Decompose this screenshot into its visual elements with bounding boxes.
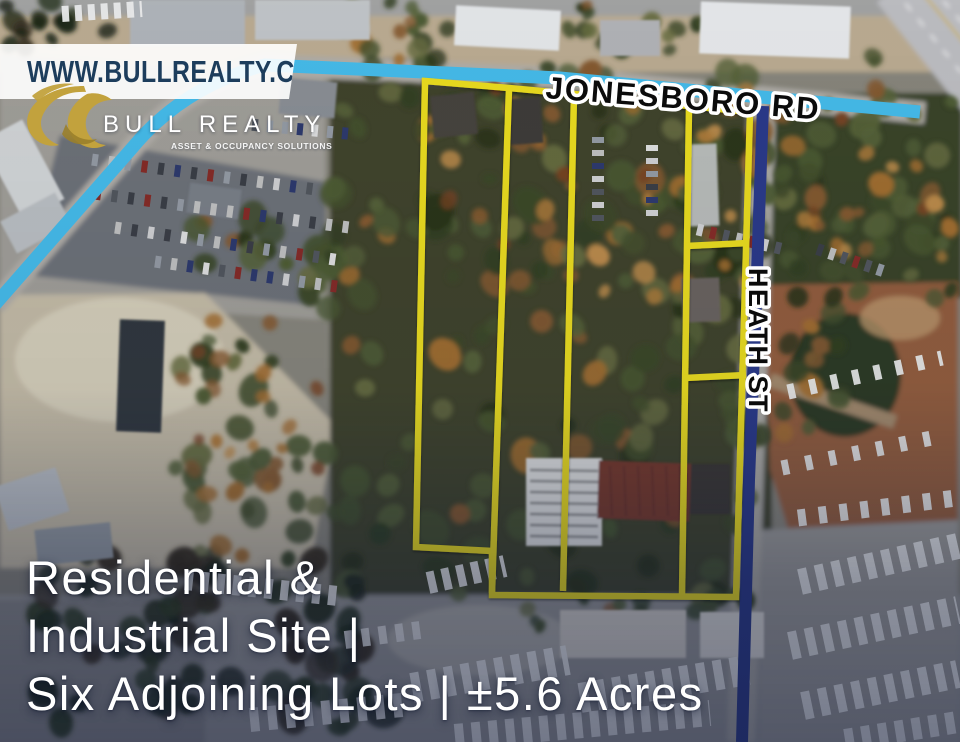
headline-line-3: Six Adjoining Lots | ±5.6 Acres bbox=[26, 665, 704, 723]
listing-flyer: JONESBORO RD HEATH ST WWW.BULLREALTY.COM… bbox=[0, 0, 960, 742]
headline: Residential & Industrial Site | Six Adjo… bbox=[26, 549, 704, 723]
headline-line-2: Industrial Site | bbox=[26, 607, 704, 665]
company-tagline: ASSET & OCCUPANCY SOLUTIONS bbox=[171, 141, 332, 151]
company-name: BULL REALTY bbox=[103, 111, 326, 139]
bull-realty-logo: BULL REALTY ASSET & OCCUPANCY SOLUTIONS bbox=[0, 86, 340, 166]
headline-line-1: Residential & bbox=[26, 549, 704, 607]
heath-street-label: HEATH ST bbox=[743, 268, 773, 413]
